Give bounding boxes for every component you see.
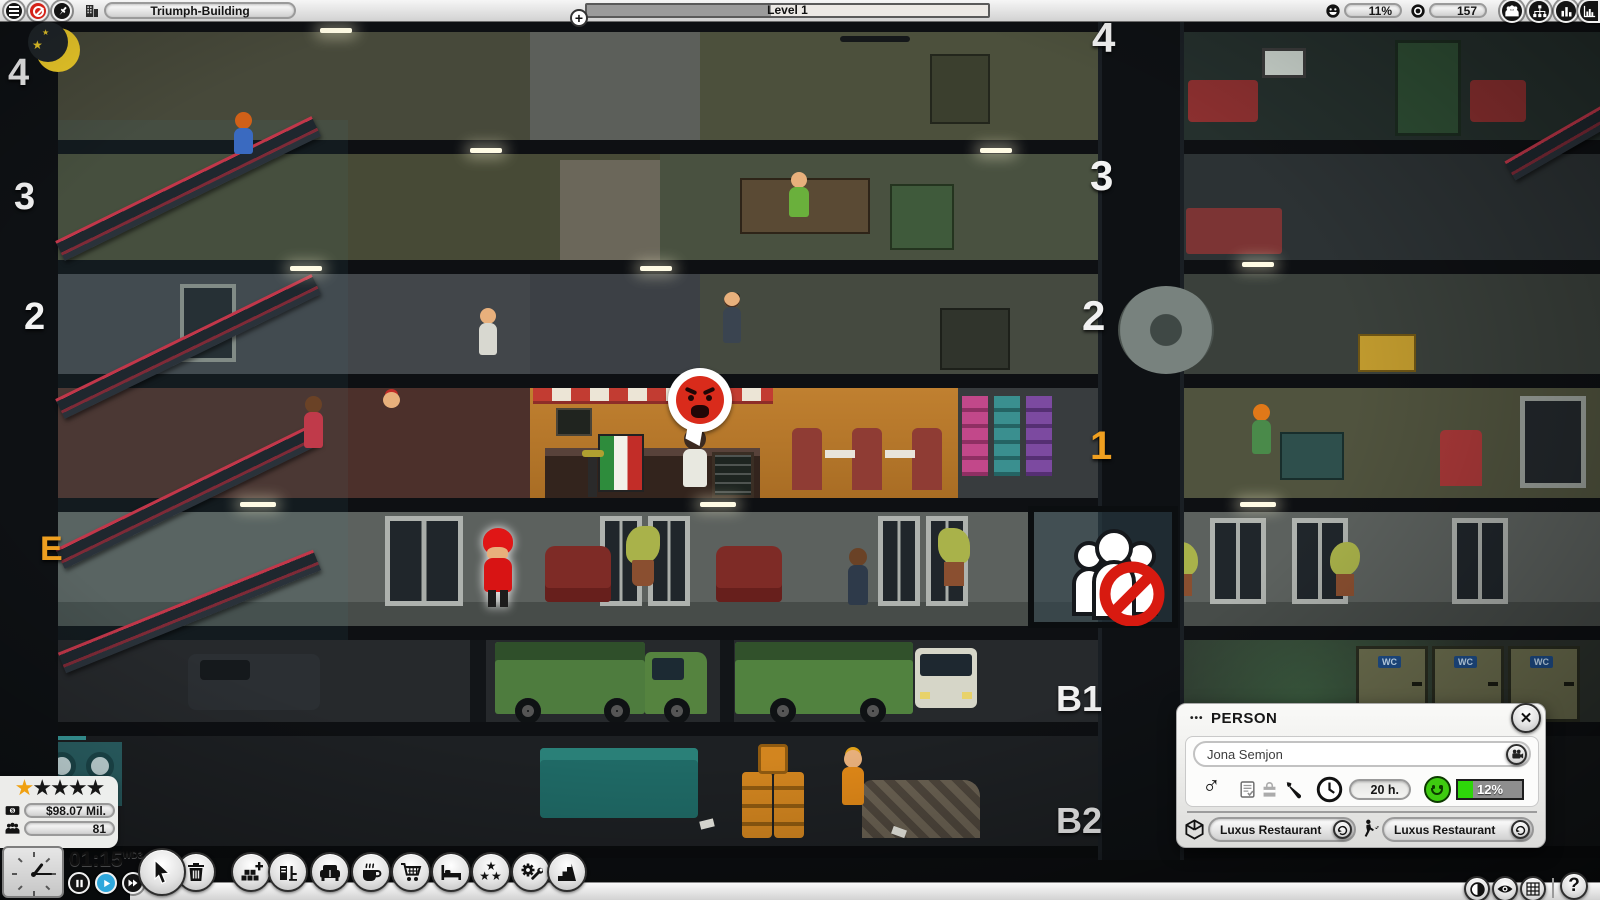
trash-icon: [184, 860, 208, 884]
sofa-icon: [318, 860, 342, 884]
histogram-icon: [1582, 4, 1597, 19]
star-empty: ★: [68, 777, 86, 801]
star-empty: ★: [50, 777, 68, 801]
floor-label-right: 3: [1090, 152, 1113, 200]
people-group-icon: [1504, 3, 1520, 19]
building-icon: [84, 3, 100, 19]
shop-button[interactable]: [391, 852, 431, 892]
grid-view-button[interactable]: [1520, 876, 1546, 900]
help-icon: ?: [1568, 875, 1580, 897]
block-mode-button[interactable]: [28, 1, 48, 21]
satisfaction-icon: [1325, 3, 1341, 19]
happiness-bar: 12%: [1456, 779, 1524, 800]
wc-sign: WC: [1378, 656, 1401, 668]
money-display: $98.07 Mil.: [24, 803, 115, 818]
prohibition-icon: [33, 6, 44, 17]
person-figure[interactable]: [380, 390, 402, 448]
play-button[interactable]: [95, 872, 117, 894]
menu-button[interactable]: [4, 1, 24, 21]
hierarchy-icon: [1532, 4, 1547, 19]
weekday-display: WD3: [123, 850, 143, 860]
armchair: [545, 546, 611, 602]
person-figure[interactable]: [722, 292, 742, 348]
population-icon: [3, 821, 22, 837]
drag-dots-icon: •••: [1190, 713, 1204, 724]
decoration-button[interactable]: ★ ★★: [471, 852, 511, 892]
person-figure[interactable]: [302, 396, 324, 454]
pin-button[interactable]: [52, 1, 72, 21]
star-filled: ★: [15, 777, 33, 801]
floor-label-right: B1: [1056, 678, 1102, 720]
stars-icon: ★ ★★: [479, 861, 503, 881]
person-name-field[interactable]: Jona Semjon: [1193, 741, 1531, 767]
junk-pile: [862, 780, 980, 838]
video-camera-icon: [1510, 748, 1524, 762]
statistics-button[interactable]: [1554, 0, 1578, 23]
person-figure[interactable]: [846, 548, 868, 614]
office-furniture-button[interactable]: [268, 852, 308, 892]
level-progress-bar: Level 1: [585, 3, 990, 18]
gender-male-icon: ♂: [1202, 771, 1221, 800]
redo-arrow-icon: [1514, 823, 1527, 836]
close-button[interactable]: ✕: [1511, 703, 1541, 733]
star-empty: ★: [32, 777, 50, 801]
selected-person-character[interactable]: [476, 528, 520, 612]
cursor-icon: [148, 858, 176, 886]
svg-text:$: $: [11, 808, 14, 814]
hamburger-icon: [9, 6, 19, 8]
grid-icon: [1525, 881, 1541, 897]
satisfaction-value: 11%: [1344, 3, 1402, 18]
location-cube-icon: [1183, 818, 1206, 841]
gear-wrench-icon: [519, 860, 543, 884]
divider: [1187, 811, 1537, 813]
eye-icon: [1496, 880, 1514, 898]
bottom-bar: [130, 882, 1600, 900]
person-info-panel: ••• PERSON ✕ Jona Semjon ♂ 20 h.: [1176, 703, 1546, 848]
work-time-display: 20 h.: [1349, 779, 1411, 800]
game-screen: ★ ★ 4 3 2 E 4 3 2 1 B1 B2 WC WC WC: [0, 0, 1600, 900]
angry-speech-bubble[interactable]: [668, 368, 734, 444]
redo-arrow-icon: [1336, 823, 1349, 836]
happiness-value: 12%: [1458, 781, 1522, 798]
goto-location-button[interactable]: [1333, 820, 1352, 839]
current-location-button[interactable]: Luxus Restaurant: [1208, 817, 1356, 842]
building-name-field[interactable]: Triumph-Building: [104, 2, 296, 19]
play-icon: [101, 878, 112, 889]
explosive-barrels: [742, 772, 772, 838]
wc-sign: WC: [1530, 656, 1553, 668]
plus-icon: +: [575, 13, 583, 23]
lounge-furniture-button[interactable]: [310, 852, 350, 892]
desk-chair-icon: [276, 860, 300, 884]
population-display: 81: [24, 821, 115, 836]
angry-face-icon: [676, 376, 724, 424]
shopping-cart-icon: [399, 860, 423, 884]
star-glyph: ★: [42, 28, 49, 37]
floor-label-right: 1: [1090, 424, 1112, 469]
visitors-icon: [1410, 3, 1426, 19]
pin-icon: [56, 5, 69, 18]
utilities-button[interactable]: [511, 852, 551, 892]
hierarchy-button[interactable]: [1527, 0, 1551, 23]
floor-label-left: E: [40, 530, 63, 569]
italian-flag: [598, 434, 644, 492]
level-label: Level 1: [587, 5, 988, 16]
close-icon: ✕: [1520, 709, 1533, 727]
money-icon: $: [3, 803, 22, 818]
elevator-blocked-icon: [1056, 522, 1168, 626]
armchair: [716, 546, 782, 602]
wc-sign: WC: [1454, 656, 1477, 668]
contract-icon: [1238, 779, 1257, 800]
person-figure[interactable]: [232, 112, 254, 160]
divider: [1552, 878, 1554, 898]
person-figure[interactable]: [478, 308, 498, 360]
green-truck: [735, 642, 913, 714]
building-name: Triumph-Building: [150, 4, 249, 18]
destination-button[interactable]: Luxus Restaurant: [1382, 817, 1534, 842]
analog-clock: [2, 846, 64, 898]
hotel-button[interactable]: [431, 852, 471, 892]
repair-wrench-icon: [1283, 779, 1305, 801]
cafe-button[interactable]: [351, 852, 391, 892]
floor-label-right: 2: [1082, 292, 1105, 340]
pause-icon: [74, 878, 85, 889]
shopping-bag-icon: [1260, 779, 1279, 800]
people-overview-button[interactable]: [1500, 0, 1524, 23]
happiness-smiley-icon: [1424, 776, 1451, 803]
clock-icon: [1316, 776, 1343, 803]
select-tool-button[interactable]: [138, 848, 186, 896]
person-details: Jona Semjon ♂ 20 h. 12%: [1185, 736, 1539, 807]
visibility-button[interactable]: [1492, 876, 1518, 900]
menu-chalkboard: [712, 452, 754, 498]
panel-title: PERSON: [1211, 710, 1277, 727]
floor-label-left: 3: [14, 176, 35, 219]
bar-chart-icon: [1559, 4, 1574, 19]
star-glyph: ★: [32, 38, 43, 52]
minute-hand: [34, 873, 52, 875]
vault-door: [1118, 286, 1214, 374]
moon-night-icon: ★ ★: [26, 26, 84, 78]
pause-button[interactable]: [68, 872, 90, 894]
left-column: [0, 22, 58, 860]
person-figure[interactable]: [840, 750, 866, 816]
contrast-icon: [1469, 881, 1486, 898]
floor-label-left: 2: [24, 296, 45, 339]
follow-camera-button[interactable]: [1506, 744, 1527, 765]
fast-forward-icon: [127, 877, 139, 889]
goto-destination-button[interactable]: [1511, 820, 1530, 839]
add-level-button[interactable]: +: [570, 9, 588, 27]
visitors-value: 157: [1429, 3, 1487, 18]
analytics-button[interactable]: [1578, 0, 1600, 23]
stairs-button[interactable]: [547, 852, 587, 892]
contrast-view-button[interactable]: [1464, 876, 1490, 900]
help-button[interactable]: ?: [1560, 872, 1588, 900]
star-empty: ★: [86, 777, 104, 801]
time-display: 01:15WD3: [69, 848, 143, 872]
build-blocks-plus-icon: [239, 860, 263, 884]
hud-panel: ★ ★ ★ ★ ★ $ $98.07 Mil. 81: [0, 776, 118, 848]
person-figure[interactable]: [1250, 404, 1272, 460]
elevator-car[interactable]: [1028, 506, 1178, 628]
bed-icon: [439, 860, 463, 884]
coffee-cup-icon: [359, 860, 383, 884]
floor-label-right: B2: [1056, 800, 1102, 842]
top-bar: Triumph-Building + Level 1 11% 157: [0, 0, 1600, 22]
build-rooms-button[interactable]: [231, 852, 271, 892]
walking-person-icon: [1360, 816, 1380, 842]
stairs-icon: [555, 860, 579, 884]
person-figure[interactable]: [788, 172, 810, 222]
star-rating: ★ ★ ★ ★ ★: [3, 777, 115, 801]
